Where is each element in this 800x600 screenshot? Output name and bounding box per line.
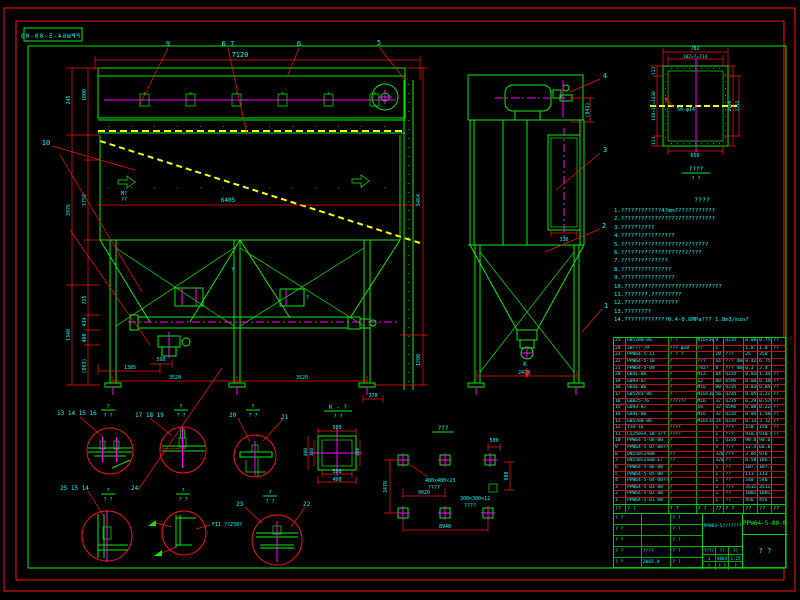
table-cell: Q235 (724, 338, 744, 345)
table-cell: 1 (714, 465, 724, 471)
table-cell: 2.4 (758, 366, 772, 372)
table-cell: ?? (772, 338, 785, 345)
product-name: PPW64-5??????? (703, 514, 743, 546)
signature-cell: ? ? (671, 514, 702, 524)
callout-6-7: 6 7 (222, 40, 235, 48)
table-row: 19GB93-87?128065Mn0.0020.168?? (614, 378, 785, 385)
table-cell: 1 (714, 472, 724, 478)
drawing-number: PPW64-5-00-00 (743, 514, 787, 535)
table-cell: 10 (714, 352, 724, 358)
detail-label-23: 23 (236, 501, 244, 508)
dim-336: 336 (559, 237, 568, 243)
table-cell: GB825-76 (626, 399, 669, 405)
scale-mark: ?? ? (263, 490, 277, 505)
table-cell (772, 359, 785, 365)
table-cell: 14 (714, 359, 724, 365)
table-cell: YJD-16 (626, 425, 669, 431)
dim-3478: 3478 (383, 481, 389, 493)
table-cell: ?? (724, 472, 744, 478)
table-cell: ??? (724, 425, 744, 431)
table-cell: ??? (724, 445, 744, 451)
table-cell: 540 (744, 478, 758, 484)
table-cell: 8 (714, 366, 724, 372)
scale-label: ?? (729, 547, 742, 554)
table-cell: ???? (669, 432, 697, 438)
table-row: 13GB5780-86?M16×14024Q2350.133.12?? (614, 418, 785, 425)
table-cell: 1.504 (758, 412, 772, 418)
signature-row: ? ? ? ? (614, 514, 702, 525)
table-cell: ?? (772, 372, 785, 378)
table-cell: Q235 (724, 419, 744, 425)
k-view-label: K - ? (329, 404, 347, 411)
table-cell (772, 491, 785, 497)
table-row: 6PPW64-5-06-00?1??107.4107.4 (614, 464, 785, 471)
table-cell (697, 432, 715, 438)
table-cell: 90.0 (744, 438, 758, 444)
table-cell: ?? (669, 452, 697, 458)
table-cell: 84 (714, 372, 724, 378)
table-cell: 250 (758, 352, 772, 358)
table-cell: 14 (614, 412, 626, 418)
table-cell: 0.002 (744, 379, 758, 385)
table-cell (697, 445, 715, 451)
table-cell: DN150×2400-E? (626, 458, 669, 464)
table-cell (697, 438, 715, 444)
table-cell: 1001 (744, 491, 758, 497)
table-cell: 16 (697, 405, 715, 411)
signature-cell: ? ? (614, 525, 642, 535)
signature-row: ? ? 2002.4 ? ? (614, 558, 702, 569)
table-cell: 6.753 (758, 359, 772, 365)
table-cell: Q235 (724, 372, 744, 378)
table-row: 23PPW64-5-11? ? ?10???25250 (614, 351, 785, 358)
dim-1332: 1332 (735, 100, 741, 111)
table-cell: 19 (614, 379, 626, 385)
svg-text:?: ? (181, 488, 184, 494)
table-cell (697, 425, 715, 431)
table-cell: ? (669, 392, 697, 398)
table-cell (697, 352, 715, 358)
dim-5464: 5464 (416, 194, 422, 206)
table-row: 1PPW64-5-01-00?1??456456 (614, 497, 785, 504)
table-cell: 0.578 (758, 399, 772, 405)
signature-cell: ? ? (614, 536, 642, 546)
note-line: 6.???????????????????????? (614, 249, 790, 257)
table-cell: 0.016 (744, 372, 758, 378)
table-cell: M12 (697, 372, 715, 378)
corner-drawing-no: PPW64-5-00-00 (20, 33, 80, 40)
table-cell (772, 458, 785, 464)
table-cell (697, 465, 715, 471)
table-cell: 0.007 (744, 405, 758, 411)
table-cell: M10×30 (697, 392, 715, 398)
table-row: 11LS250×4.18-3??????1???910.00910.00?? (614, 431, 785, 438)
table-cell: ? (669, 405, 697, 411)
table-row: 25GB5780-86? ?M16×509Q2350.0840.754?? (614, 338, 785, 345)
table-cell: 0.3 (744, 366, 758, 372)
table-cell: ? (669, 372, 697, 378)
table-row: 1 8804 1:25 (703, 555, 742, 563)
dim-1385: 1385 (124, 365, 136, 371)
table-cell (697, 452, 715, 458)
table-cell: ? (669, 438, 697, 444)
svg-text:?: ? (106, 488, 109, 494)
table-cell (772, 465, 785, 471)
table-cell: 17 (614, 392, 626, 398)
flange-detail-view: 782 102×7=714 113 110×13=1430 113 2106 1… (650, 46, 741, 182)
table-row: 9PPW64-5-07-00???5???13.466.8 (614, 444, 785, 451)
table-cell: 107.4 (758, 465, 772, 471)
table-cell: 910.00 (744, 432, 758, 438)
signature-cell: ? ? (614, 558, 642, 569)
table-row: ? ? ? ? (703, 562, 742, 570)
table-cell (697, 485, 715, 491)
table-cell: GB93-87 (626, 379, 669, 385)
note-line: 11.???????,????????? (614, 291, 790, 299)
note-line: 2.???????????????????????????? (614, 215, 790, 223)
sheet-cell: ? (703, 562, 716, 570)
table-cell: 5 (614, 472, 626, 478)
table-cell: 8 (614, 452, 626, 458)
table-cell: 16 (614, 399, 626, 405)
weight-label: ??(Kg) (716, 547, 729, 554)
dim-782: 782 (690, 46, 699, 52)
table-cell: 0.29 (744, 399, 758, 405)
table-cell: ? (669, 419, 697, 425)
table-cell: ?? (724, 478, 744, 484)
table-cell: 150 (758, 425, 772, 431)
table-cell: 0.224 (758, 405, 772, 411)
table-cell: ??? (697, 359, 715, 365)
dim-400: 400 (303, 448, 309, 456)
table-cell: ??? (724, 485, 744, 491)
table-cell: ?? (772, 385, 785, 391)
callout-1: 1 (604, 302, 608, 310)
table-cell (697, 472, 715, 478)
table-cell: 1.8 (744, 346, 758, 352)
table-row: 5PPW64-5-05-00?1??113113 (614, 471, 785, 478)
table-cell: 4 (614, 478, 626, 484)
dim-8940: 8940 (439, 524, 451, 530)
table-cell: ??? (724, 432, 744, 438)
scale-mark: ?? ? (174, 404, 188, 419)
table-cell: 1 (714, 478, 724, 484)
table-row: 7DN150×2400-E???320??0.58186.4 (614, 457, 785, 464)
table-cell: LS250×4.18-3?? (626, 432, 669, 438)
table-cell: ?42? (697, 366, 715, 372)
signature-cell: ? ? (614, 514, 642, 524)
dim-590: 590 (156, 357, 165, 363)
signature-cell: ???? (642, 547, 672, 557)
table-cell: ?? (772, 425, 785, 431)
table-cell: ?? (669, 458, 697, 464)
table-row: 3PPW64-5-03-00?1???35113511 (614, 484, 785, 491)
callout-5: 5 (377, 39, 381, 47)
table-cell (772, 472, 785, 478)
date-cell: 2002.4 (642, 558, 672, 569)
table-cell: 1 (714, 485, 724, 491)
table-row: 14GB41-86?M1632Q2350.0471.504?? (614, 411, 785, 418)
table-cell: PPW64-5-02-00 (626, 491, 669, 497)
table-cell: ?? (724, 465, 744, 471)
table-cell: 13.4 (744, 445, 758, 451)
table-cell (772, 366, 785, 372)
table-cell: ? (669, 445, 697, 451)
table-cell: 0.047 (744, 412, 758, 418)
table-cell: 1 (714, 432, 724, 438)
dim-350: 350 (309, 448, 315, 456)
table-cell: JB???-79 (626, 346, 669, 352)
note-line: 9.???????????????? (614, 274, 790, 282)
detail-label-20: 20 (229, 412, 237, 419)
table-cell: ??? 4mm? (724, 366, 744, 372)
table-cell: 65Mn (724, 405, 744, 411)
scale-value: 1:25 (729, 555, 742, 562)
table-cell: 56 (714, 392, 724, 398)
table-cell: PPW64-5-04-00?? (626, 478, 669, 484)
table-cell: 11 (614, 432, 626, 438)
table-cell: ?? (772, 399, 785, 405)
note-line: 12.???????????????? (614, 299, 790, 307)
dim-841: (841) (585, 102, 591, 117)
dim-1200: 1200 (416, 354, 422, 366)
signature-cell: ? ? (671, 525, 702, 535)
table-cell: ?? (772, 419, 785, 425)
table-cell: 3.21 (758, 392, 772, 398)
note-line: 5.?????????????????????????? (614, 241, 790, 249)
svg-text:? ?: ? ? (176, 413, 185, 419)
table-cell: 32 (714, 412, 724, 418)
table-cell: ? (669, 478, 697, 484)
table-cell (772, 485, 785, 491)
table-cell: 320 (714, 452, 724, 458)
scale-mark: ?? ? (176, 488, 190, 503)
table-cell: 25 (614, 338, 626, 345)
table-cell: Q235 (724, 438, 744, 444)
table-cell: PPW64-5-10 (626, 359, 669, 365)
table-cell: 23 (614, 352, 626, 358)
table-cell: PPW64-5-03-00 (626, 485, 669, 491)
weld-mark: ? (306, 295, 309, 301)
svg-text:?: ? (179, 404, 182, 410)
table-cell: 24 (614, 346, 626, 352)
table-cell: 7 (614, 458, 626, 464)
table-cell: 20 (614, 372, 626, 378)
side-elevation-view (468, 75, 584, 395)
table-cell: Q235 (724, 399, 744, 405)
table-cell: 3.05 (744, 452, 758, 458)
plate-a-label: 480×480×23 (425, 478, 455, 484)
table-cell: GB5780-86 (626, 419, 669, 425)
title-block: ? ? ? ? ? ? ? ? ? ? ? ? ? ? ???? ? ? ? ? (613, 513, 786, 568)
table-cell: 24 (714, 419, 724, 425)
table-cell: 25 (744, 352, 758, 358)
svg-text:? ?: ? ? (265, 499, 274, 505)
table-cell: ??? φ10 (669, 346, 697, 352)
table-row: 4PPW64-5-04-00???1??540540 (614, 477, 785, 484)
table-cell: 80 (714, 379, 724, 385)
dim-550: 550 (332, 469, 341, 475)
table-cell: 18 (614, 385, 626, 391)
table-cell: 1001 (758, 491, 772, 497)
table-cell: 976 (758, 452, 772, 458)
sheet-cell: ? ? (716, 562, 729, 570)
table-cell (697, 491, 715, 497)
table-cell (772, 445, 785, 451)
weight-value: 8804 (716, 555, 729, 562)
anchor-bolt-layout: ??? 3478 9020 8940 600 500 480×480×23 ??… (383, 425, 514, 532)
table-cell: M16 (697, 412, 715, 418)
signature-cell: ? ? (671, 536, 702, 546)
front-elevation-view: M? ?? ? ? (98, 68, 420, 395)
table-cell: M16×140 (697, 419, 715, 425)
dim-500b: 500 (489, 438, 498, 444)
detail-label-24: 24 (131, 485, 139, 492)
table-cell: PPW64-5-11 (626, 352, 669, 358)
table-row: 24JB???-79??? φ10??11.81.8?? (614, 345, 785, 352)
note-line: 14.?????????????0.4-0.6MPa??? 1.8m3/min? (614, 316, 790, 324)
callout-10: 10 (42, 139, 50, 147)
table-cell: PPW64-5-05-00 (626, 472, 669, 478)
table-cell (772, 478, 785, 484)
note-line: 4.???????????????? (614, 232, 790, 240)
table-cell: ? (669, 366, 697, 372)
table-row: 20GB41-86?M1284Q2350.0161.344?? (614, 371, 785, 378)
svg-text:? ?: ? ? (103, 413, 112, 419)
table-cell: ?? (772, 405, 785, 411)
notes-lines: 1.????????????4?mm????????????2.????????… (614, 207, 790, 325)
dim-500: 500 (332, 425, 341, 431)
table-cell: 32 (714, 399, 724, 405)
table-cell: 0.084 (744, 338, 758, 345)
signature-cell (642, 514, 672, 524)
table-cell: GB5781-86 (626, 392, 669, 398)
holes-label: 50-φ14 (677, 107, 695, 113)
note-line: 7.?????????????? (614, 257, 790, 265)
table-cell: GB41-86 (626, 385, 669, 391)
detail-label-21: 21 (281, 414, 289, 421)
dim-3520a: 3520 (169, 375, 181, 381)
signature-cell: ? ? (671, 558, 702, 569)
table-cell: ?? (724, 491, 744, 497)
dim-2106: 2106 (727, 100, 733, 111)
table-cell: Q235 (724, 412, 744, 418)
table-cell: ?? (772, 346, 785, 352)
table-cell: 113 (744, 472, 758, 478)
dim-113a: 113 (651, 67, 657, 75)
callout-3: 3 (603, 146, 607, 154)
signature-cell: ? ? (614, 547, 642, 557)
table-cell (772, 438, 785, 444)
table-cell: GB5780-86 (626, 338, 669, 345)
svg-text:?: ? (268, 490, 271, 496)
anchor-bolt-marks (396, 453, 497, 520)
table-cell: PPW64-5-09 (626, 366, 669, 372)
table-cell: ?????? (669, 399, 697, 405)
table-cell: PPW64-5-01-00 (626, 498, 669, 504)
detail-label-251514: 25 15 14 (60, 485, 89, 492)
table-cell: 3511 (744, 485, 758, 491)
signature-area: ? ? ? ? ? ? ? ? ? ? ? ? ? ? ???? ? ? ? ? (614, 514, 703, 569)
table-cell: ? (669, 412, 697, 418)
table-cell: 3511 (758, 485, 772, 491)
signature-row: ? ? ? ? (614, 525, 702, 536)
signature-row: ? ? ? ? (614, 536, 702, 547)
table-cell: 65Mn (724, 379, 744, 385)
qty-label: ???? (703, 547, 716, 554)
table-cell: 1 (714, 491, 724, 497)
callout-2: 2 (602, 222, 606, 230)
detail-label-13141516: 13 14 15 16 (57, 410, 97, 417)
table-cell: 0.010 (744, 385, 758, 391)
flange-view-title: ???? (689, 166, 704, 173)
table-cell: 0.754 (758, 338, 772, 345)
table-cell: 1 (714, 425, 724, 431)
table-cell: 150 (744, 425, 758, 431)
table-cell: M16×50 (697, 338, 715, 345)
table-row: 22PPW64-5-10????14??? 4mm??0.4236.753 (614, 358, 785, 365)
table-cell: GB41-86 (626, 412, 669, 418)
callout-6: 6 (297, 40, 301, 48)
table-cell: 32 (714, 405, 724, 411)
dim-245: 245 (66, 95, 72, 104)
svg-text:?: ? (106, 404, 109, 410)
note-line: 10.????????????????????????????? (614, 283, 790, 291)
table-cell: ?? (724, 498, 744, 504)
table-cell (697, 478, 715, 484)
table-row: ???? ??(Kg) ?? (703, 547, 742, 555)
table-cell: PPW64-5-06-00 (626, 465, 669, 471)
dim-863: (863) (82, 358, 88, 373)
table-cell: 456 (744, 498, 758, 504)
front-view-callouts: 9 6 7 6 5 10 (42, 39, 405, 345)
table-cell (697, 498, 715, 504)
table-cell: ? ? ? (669, 352, 697, 358)
flow-arrow-icon (118, 176, 135, 188)
table-cell: 540 (758, 478, 772, 484)
scale-mark: ?? ? (101, 488, 115, 503)
plate-a-note: ???? (428, 485, 440, 491)
table-row: 15GB93-87?163265Mn0.0070.224?? (614, 404, 785, 411)
plate-b-note: ???? (464, 503, 476, 509)
dim-490: 490 (332, 477, 341, 483)
dim-434: 434 (82, 317, 88, 326)
dim-7120: 7120 (232, 51, 249, 59)
table-cell: 0.84 (758, 385, 772, 391)
table-row: 10PPW64-5-08-00?1Q23590.090.0 (614, 437, 785, 444)
table-cell: 0.423 (744, 359, 758, 365)
table-row: 8DN150×2400??320???3.05976 (614, 451, 785, 458)
table-cell: 113 (758, 472, 772, 478)
signature-cell: ? ? (671, 547, 702, 557)
table-cell: 12 (614, 425, 626, 431)
dim-3976: 3976 (66, 204, 72, 216)
table-cell: 12 (697, 379, 715, 385)
table-cell: 1 (714, 346, 724, 352)
k-view-base-plate: K - ? ? ? 500 550 490 400 350 306 (303, 404, 362, 484)
weld-note: F11 ??250? (212, 522, 242, 528)
table-cell: 3.12 (758, 419, 772, 425)
table-cell: 1.8 (758, 346, 772, 352)
table-cell (772, 498, 785, 504)
dim-600: 600 (504, 471, 510, 480)
parts-list-table: 25GB5780-86? ?M16×509Q2350.0840.754??24J… (613, 337, 786, 515)
svg-text:?: ? (251, 404, 254, 410)
plate-b-label: 300×300×12 (460, 496, 490, 502)
table-cell: 10 (614, 438, 626, 444)
dim-656: 656 (690, 153, 699, 159)
table-cell: PPW64-5-08-00 (626, 438, 669, 444)
